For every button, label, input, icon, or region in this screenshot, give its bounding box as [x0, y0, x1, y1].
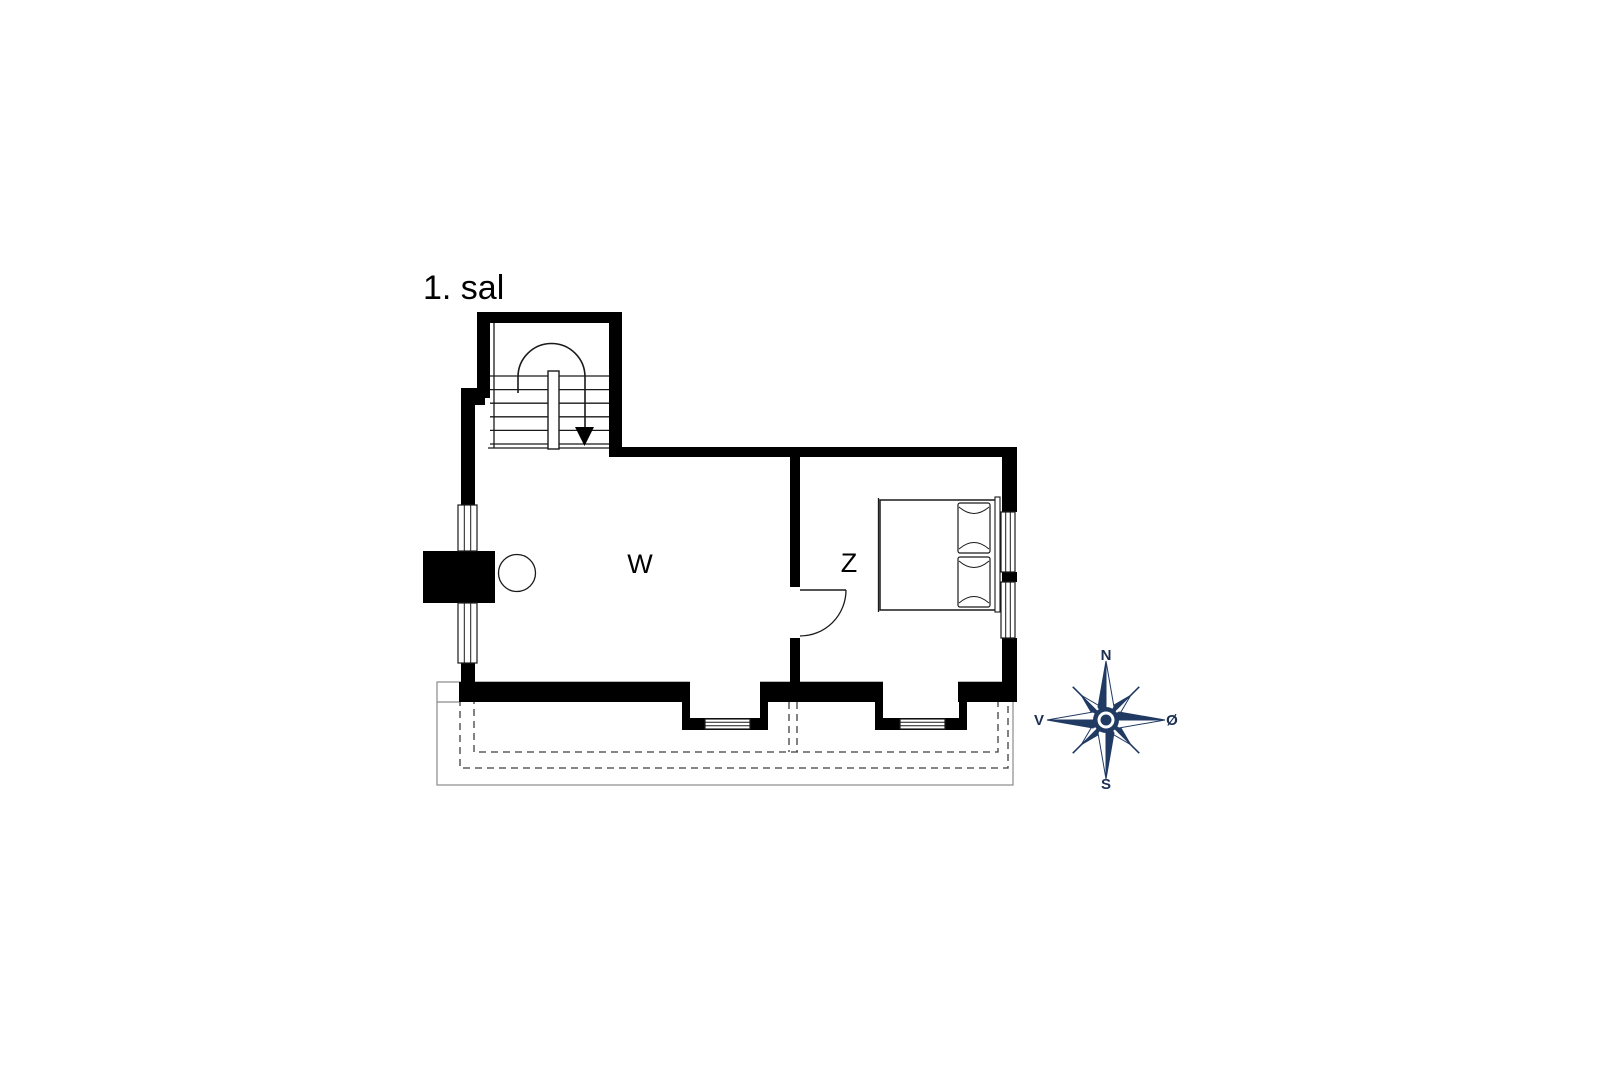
window-right-lower	[1001, 582, 1015, 638]
door-swing	[800, 590, 846, 636]
chimney	[423, 551, 495, 603]
staircase	[488, 323, 609, 449]
pillow	[958, 503, 990, 553]
dormer-bay-floor	[883, 655, 958, 718]
door-arc	[800, 590, 846, 636]
double-bed	[879, 497, 1001, 612]
wall-segment	[459, 682, 690, 702]
compass-rose: N S V Ø	[1034, 647, 1178, 793]
window-left-upper	[458, 505, 477, 551]
pillow	[958, 557, 990, 607]
compass-hub-dot	[1101, 715, 1112, 726]
stove	[499, 555, 536, 592]
compass-label-east: Ø	[1166, 712, 1178, 729]
dormer-bay-floor	[690, 655, 760, 718]
wall-segment	[959, 702, 967, 730]
wall-segment	[760, 702, 768, 730]
compass-label-west: V	[1034, 712, 1044, 729]
page-title: 1. sal	[423, 269, 504, 307]
window-right-upper	[1001, 512, 1015, 572]
window-left-lower	[458, 603, 477, 663]
wall-segment	[1002, 447, 1017, 512]
compass-label-north: N	[1101, 647, 1112, 664]
wall-segment	[958, 682, 1017, 702]
floor-plan: 1. sal W Z	[0, 0, 1600, 1067]
window-dormer-right	[900, 719, 945, 729]
wall-segment	[1002, 572, 1017, 582]
wall-segment	[609, 447, 1017, 457]
wall-segment	[461, 398, 475, 505]
room-w-label: W	[627, 549, 653, 579]
stair-arrow-head	[575, 427, 594, 446]
compass-label-south: S	[1101, 776, 1111, 793]
compass-star	[1047, 661, 1165, 779]
wall-segment	[790, 638, 800, 682]
floor-plan-page: 1. sal W Z	[0, 0, 1600, 1067]
room-z-label: Z	[841, 548, 858, 578]
wall-segment	[760, 682, 883, 702]
wall-segment	[609, 312, 622, 457]
wall-segment	[477, 312, 622, 323]
wall-segment	[477, 312, 490, 398]
wall-segment	[790, 457, 800, 587]
bed-headboard	[995, 497, 1000, 612]
stair-stringer	[548, 371, 559, 449]
window-dormer-left	[705, 719, 750, 729]
